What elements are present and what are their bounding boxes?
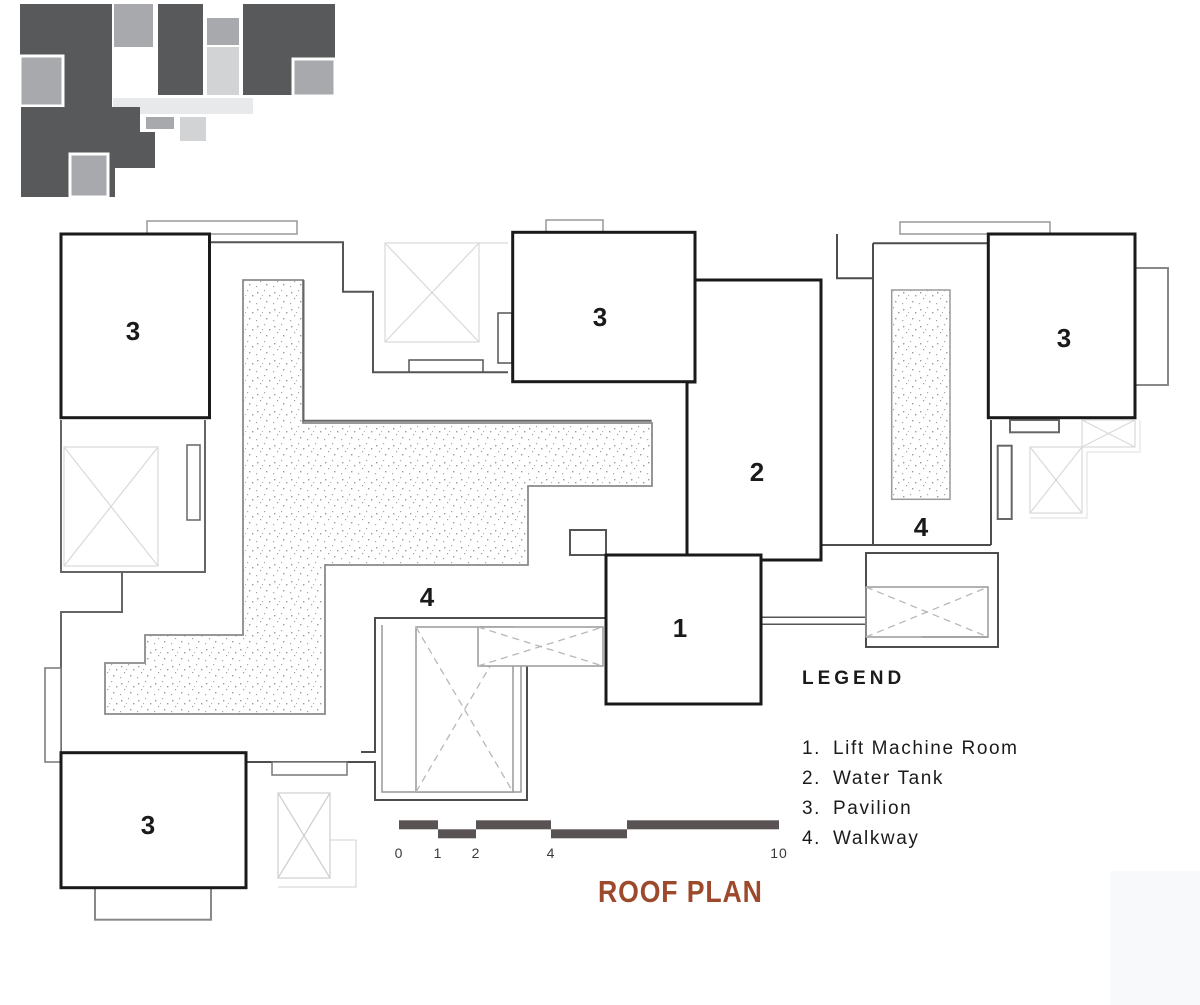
legend-item-label: Walkway (833, 824, 920, 854)
label-pavilion-top-middle: 3 (593, 302, 607, 332)
label-pavilion-top-left: 3 (126, 316, 140, 346)
legend: LEGEND 1. Lift Machine Room 2. Water Tan… (802, 668, 1132, 854)
scale-label-0: 0 (395, 845, 404, 861)
scale-label-10: 10 (770, 845, 788, 861)
label-pavilion-bottom-left: 3 (141, 810, 155, 840)
legend-item-walkway: 4. Walkway (802, 824, 1132, 854)
legend-item-label: Lift Machine Room (833, 734, 1019, 764)
legend-items: 1. Lift Machine Room 2. Water Tank 3. Pa… (802, 734, 1132, 854)
label-pavilion-top-right: 3 (1057, 323, 1071, 353)
legend-item-number: 2. (802, 764, 833, 794)
roof-plan-drawing: 3 3 3 3 2 1 4 4 0 1 2 4 10 (0, 0, 1200, 1005)
stipple-strip-right (892, 290, 950, 499)
legend-item-number: 4. (802, 824, 833, 854)
legend-item-label: Pavilion (833, 794, 912, 824)
legend-item-pavilion: 3. Pavilion (802, 794, 1132, 824)
key-plan-thumbnail (20, 4, 335, 197)
label-walkway-left: 4 (420, 582, 435, 612)
faint-corner-block (1110, 871, 1200, 1005)
label-water-tank: 2 (750, 457, 764, 487)
legend-heading: LEGEND (802, 668, 1132, 690)
legend-item-lift-machine-room: 1. Lift Machine Room (802, 734, 1132, 764)
page-title: ROOF PLAN (598, 874, 763, 910)
legend-item-number: 1. (802, 734, 833, 764)
label-lift-machine-room: 1 (673, 613, 687, 643)
scale-bar: 0 1 2 4 10 (395, 820, 788, 861)
legend-item-number: 3. (802, 794, 833, 824)
scale-label-1: 1 (434, 845, 443, 861)
legend-item-label: Water Tank (833, 764, 944, 794)
water-tank-room (687, 280, 821, 560)
scale-label-2: 2 (472, 845, 481, 861)
legend-item-water-tank: 2. Water Tank (802, 764, 1132, 794)
roof-plan-page: 3 3 3 3 2 1 4 4 0 1 2 4 10 LEGEND 1. Lif… (0, 0, 1200, 1005)
scale-label-4: 4 (547, 845, 556, 861)
label-walkway-right: 4 (914, 512, 929, 542)
